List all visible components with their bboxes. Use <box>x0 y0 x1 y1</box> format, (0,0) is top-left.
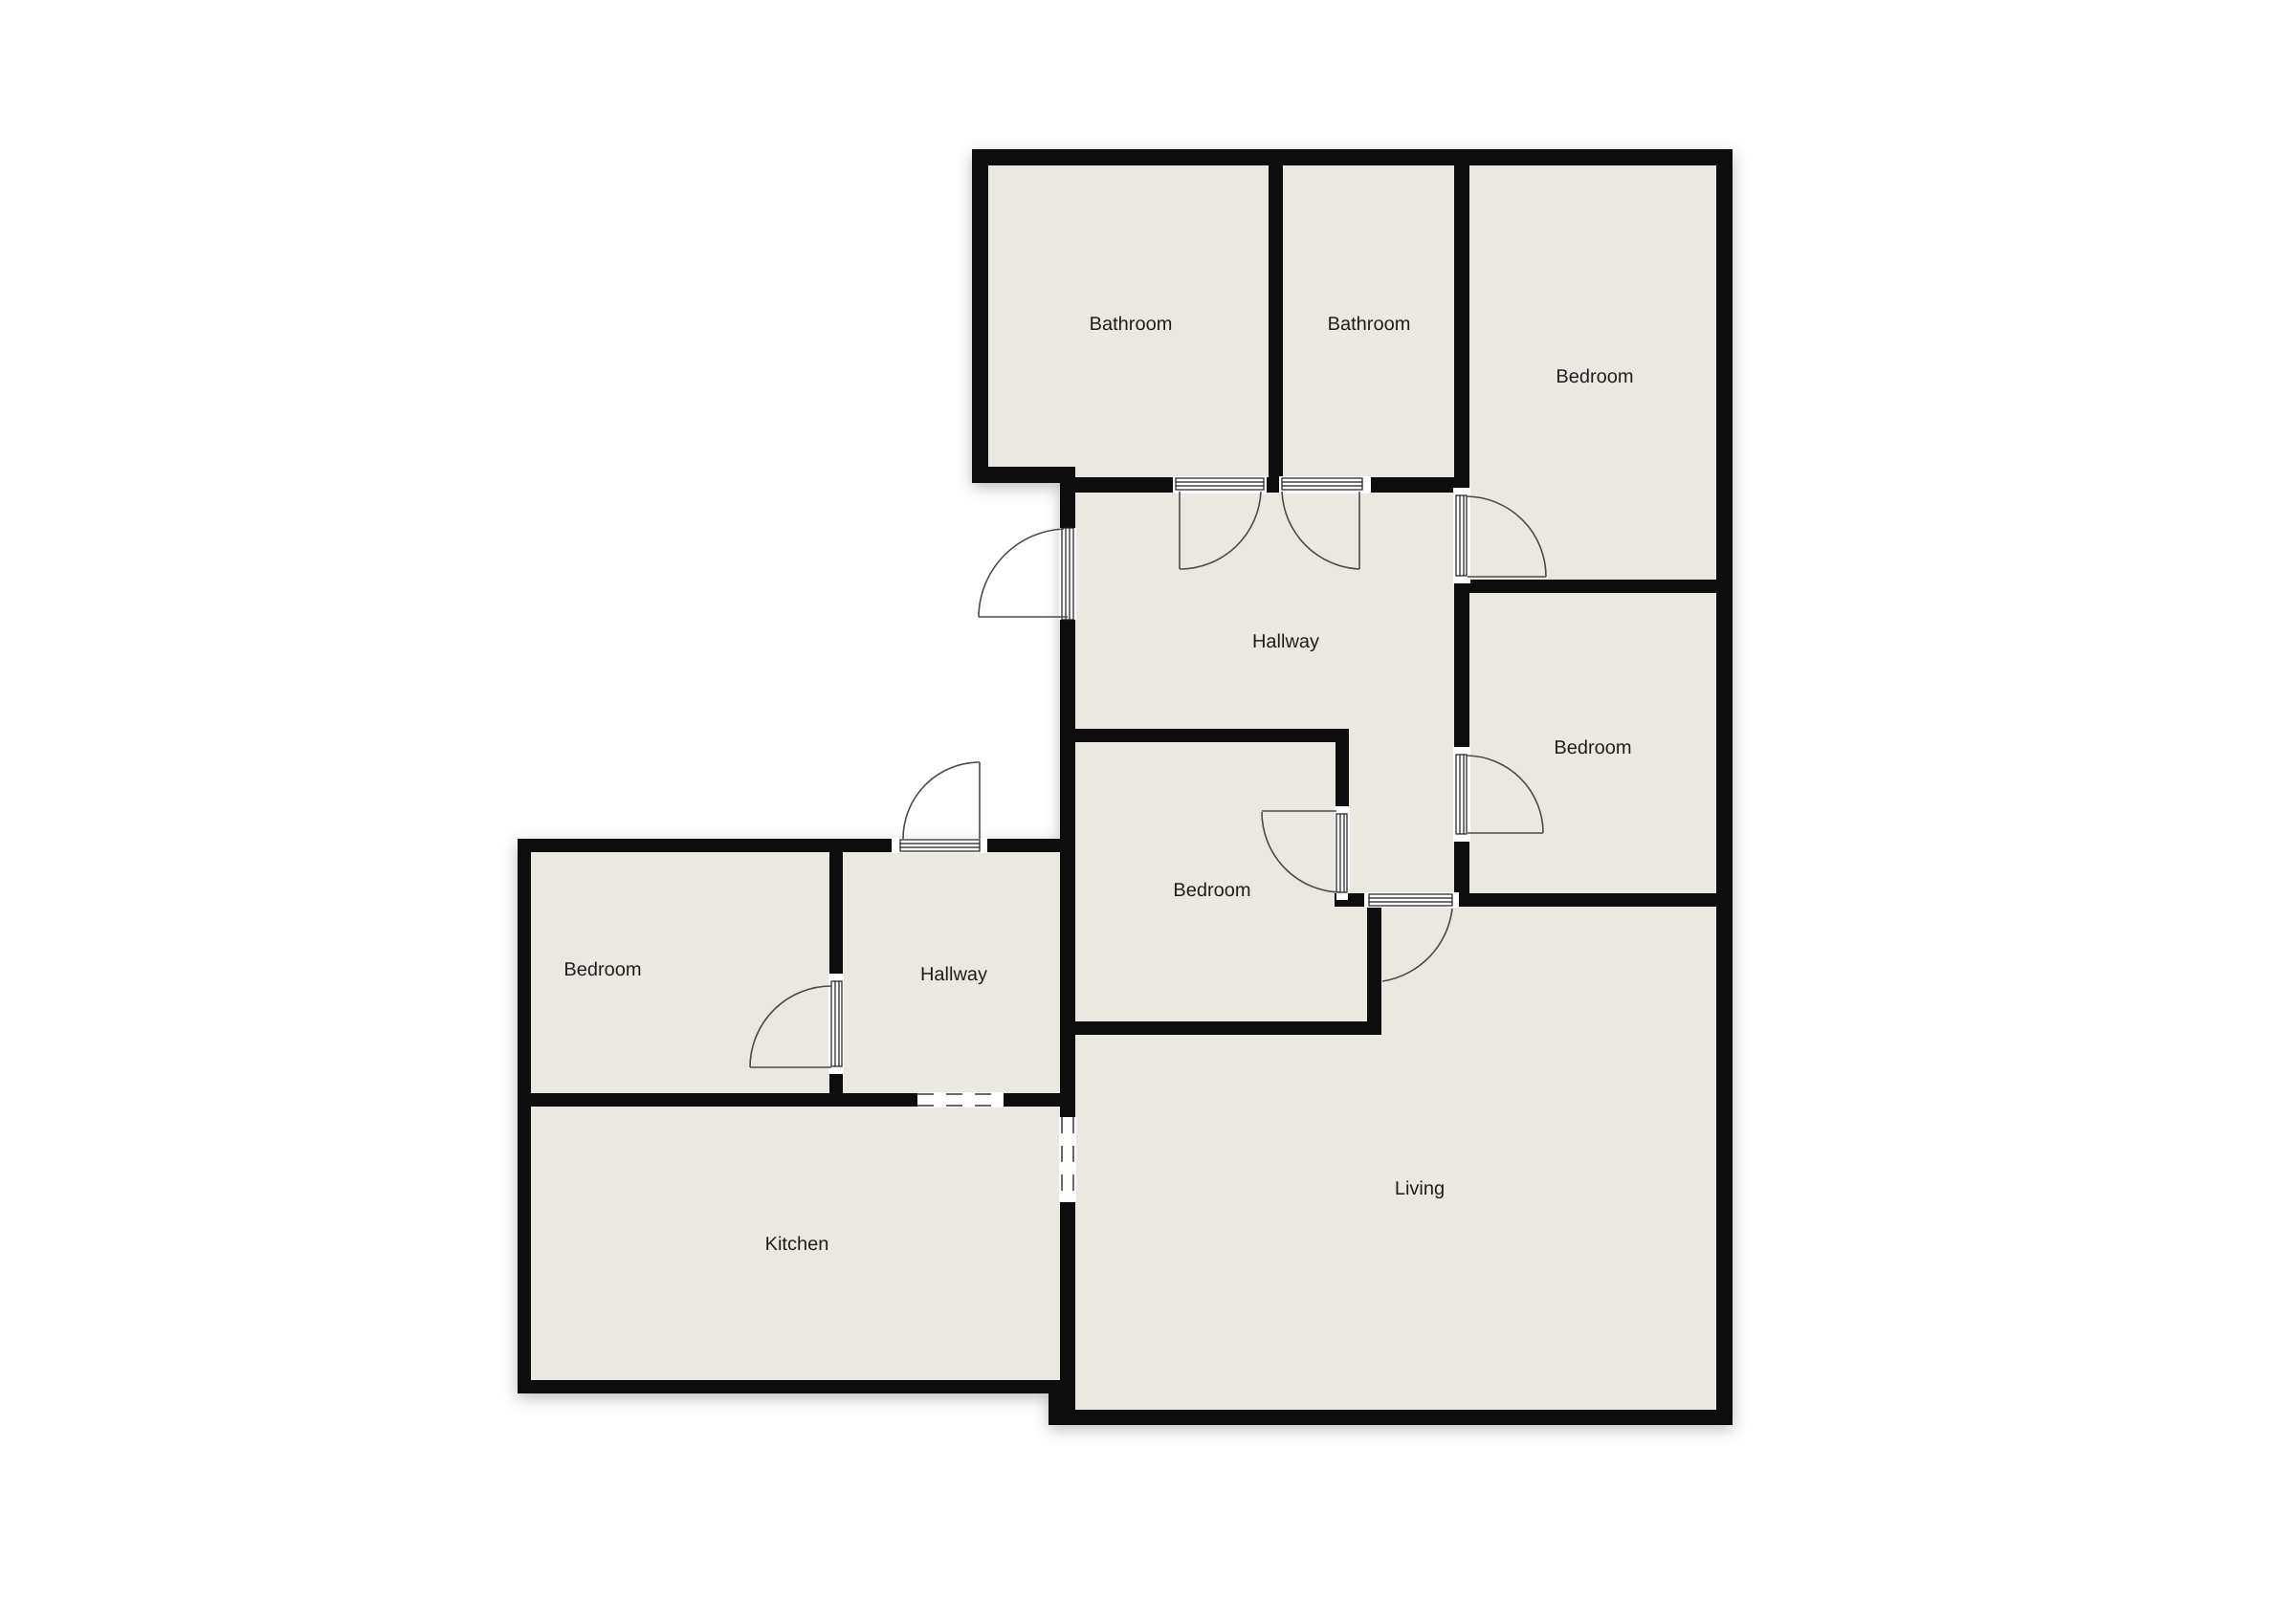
svg-text:Bedroom: Bedroom <box>1554 737 1631 758</box>
svg-text:Bedroom: Bedroom <box>1173 880 1250 901</box>
svg-text:Bathroom: Bathroom <box>1090 314 1173 335</box>
svg-text:Hallway: Hallway <box>1252 631 1319 652</box>
svg-text:Living: Living <box>1395 1178 1445 1199</box>
svg-text:Hallway: Hallway <box>920 964 987 985</box>
svg-text:Bedroom: Bedroom <box>1556 366 1633 387</box>
svg-text:Kitchen: Kitchen <box>765 1234 829 1255</box>
svg-text:Bedroom: Bedroom <box>563 959 641 980</box>
svg-text:Bathroom: Bathroom <box>1328 314 1411 335</box>
